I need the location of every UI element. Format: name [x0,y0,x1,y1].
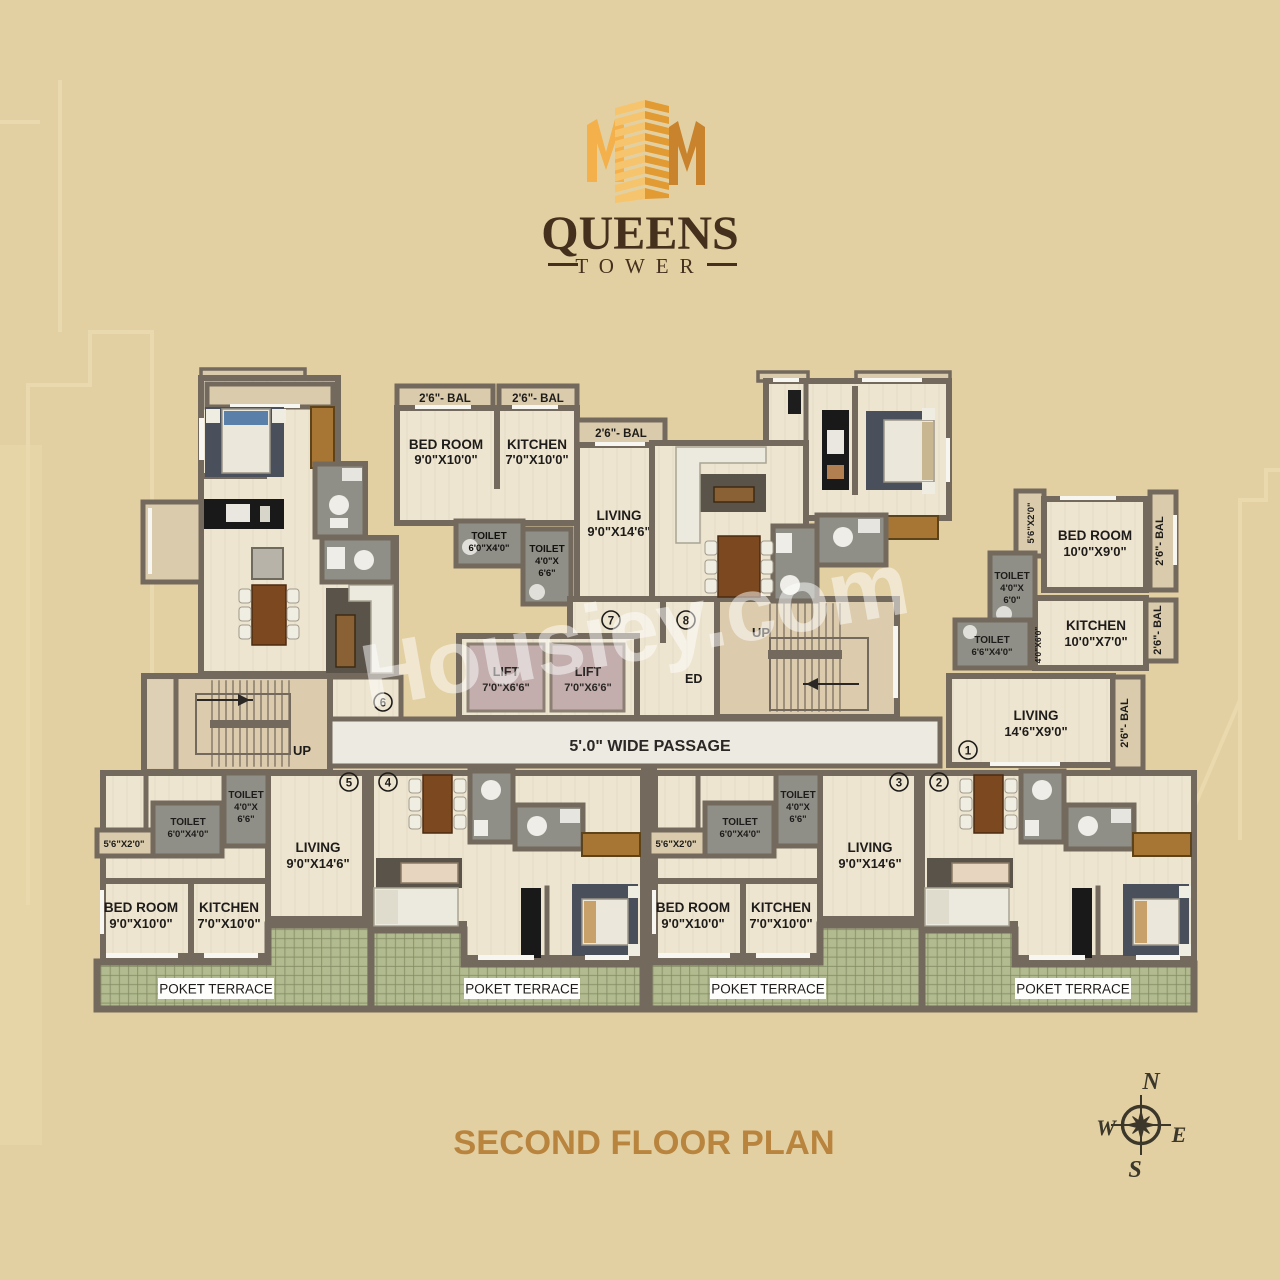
svg-text:4'0"X: 4'0"X [1000,583,1024,594]
svg-text:10'0"X7'0": 10'0"X7'0" [1064,634,1127,649]
svg-text:UP: UP [293,743,311,758]
svg-text:9'0"X14'6": 9'0"X14'6" [286,856,349,871]
svg-text:TOILET: TOILET [471,531,506,542]
svg-text:2'6"- BAL: 2'6"- BAL [1152,605,1164,655]
svg-text:6'0"X4'0": 6'0"X4'0" [469,543,510,554]
svg-text:BED ROOM: BED ROOM [409,437,483,452]
svg-text:9'0"X10'0": 9'0"X10'0" [414,452,477,467]
svg-text:4'0"X6'0": 4'0"X6'0" [1033,627,1043,664]
svg-text:4'0"X: 4'0"X [535,556,559,567]
svg-text:TOILET: TOILET [529,544,564,555]
svg-text:2'6"- BAL: 2'6"- BAL [595,428,647,440]
svg-text:6'6": 6'6" [237,814,254,825]
svg-text:TOILET: TOILET [974,635,1009,646]
svg-text:POKET TERRACE: POKET TERRACE [465,982,579,997]
svg-text:2'6"- BAL: 2'6"- BAL [1119,698,1131,748]
svg-text:6'0"X4'0": 6'0"X4'0" [168,829,209,840]
svg-text:S: S [1128,1157,1141,1183]
svg-text:TOWER: TOWER [575,254,704,278]
svg-text:N: N [1141,1069,1161,1095]
svg-text:KITCHEN: KITCHEN [507,437,567,452]
svg-text:6'0": 6'0" [1003,595,1020,606]
svg-text:BED ROOM: BED ROOM [104,900,178,915]
svg-text:POKET TERRACE: POKET TERRACE [159,982,273,997]
svg-text:KITCHEN: KITCHEN [199,900,259,915]
svg-text:KITCHEN: KITCHEN [1066,618,1126,633]
svg-text:E: E [1171,1122,1187,1147]
svg-text:1: 1 [965,746,972,758]
svg-text:7'0"X10'0": 7'0"X10'0" [505,452,568,467]
svg-text:9'0"X14'6": 9'0"X14'6" [587,524,650,539]
svg-text:10'0"X9'0": 10'0"X9'0" [1063,544,1126,559]
svg-text:LIVING: LIVING [295,840,340,855]
svg-text:TOILET: TOILET [994,571,1029,582]
svg-text:LIVING: LIVING [1013,708,1058,723]
svg-text:ED: ED [685,672,702,686]
svg-text:5'.0" WIDE PASSAGE: 5'.0" WIDE PASSAGE [569,738,731,755]
svg-text:5'6"X2'0": 5'6"X2'0" [1026,503,1037,544]
svg-text:5: 5 [346,778,353,790]
svg-text:TOILET: TOILET [170,817,205,828]
svg-text:5'6"X2'0": 5'6"X2'0" [104,839,145,850]
svg-text:2'6"- BAL: 2'6"- BAL [512,393,564,405]
svg-text:9'0"X10'0": 9'0"X10'0" [109,916,172,931]
svg-text:BED ROOM: BED ROOM [1058,528,1132,543]
svg-text:6'6": 6'6" [538,568,555,579]
svg-text:2'6"- BAL: 2'6"- BAL [419,393,471,405]
svg-text:2: 2 [936,778,942,790]
svg-text:TOILET: TOILET [228,790,263,801]
svg-text:7'0"X10'0": 7'0"X10'0" [197,916,260,931]
svg-text:14'6"X9'0": 14'6"X9'0" [1004,724,1067,739]
svg-text:QUEENS: QUEENS [541,207,738,260]
svg-text:LIVING: LIVING [596,508,641,523]
svg-text:4: 4 [385,778,392,790]
svg-text:W: W [1096,1115,1117,1140]
svg-text:4'0"X: 4'0"X [234,802,258,813]
svg-text:3: 3 [896,778,902,790]
svg-text:SECOND FLOOR PLAN: SECOND FLOOR PLAN [453,1124,834,1162]
svg-text:6'6"X4'0": 6'6"X4'0" [972,647,1013,658]
svg-text:2'6"- BAL: 2'6"- BAL [1154,516,1166,566]
